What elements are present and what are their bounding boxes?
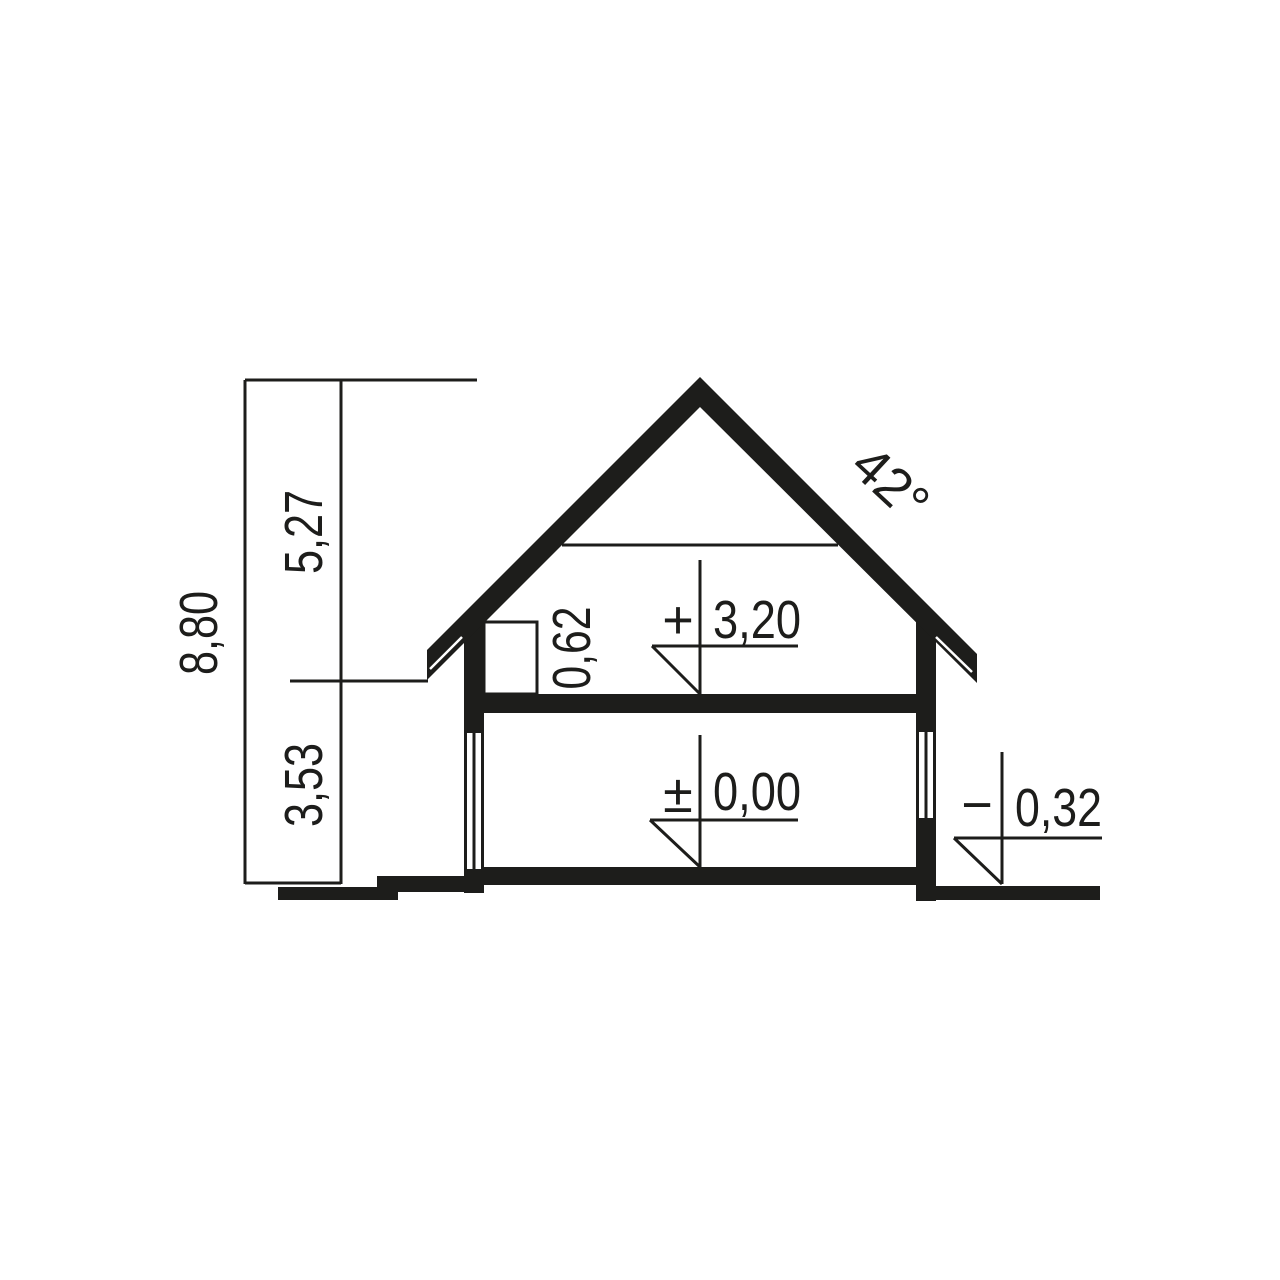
level-sign-exterior-grade: −: [961, 775, 993, 835]
right-window-inner-pane: [933, 732, 936, 818]
left-window-outer-pane: [464, 733, 467, 869]
section-canvas: 8,80 5,27 3,53 0,62 42° + 3,20 ± 0,00 − …: [0, 0, 1280, 1280]
level-marker-ground-flag: [650, 820, 700, 867]
left-wall: [464, 616, 484, 893]
dimension-label-total-height: 8,80: [169, 591, 229, 675]
level-sign-attic-floor: +: [662, 590, 694, 650]
dimension-label-upper-height: 5,27: [274, 490, 334, 574]
level-marker-grade-flag: [954, 838, 1002, 884]
level-value-exterior-grade: 0,32: [1015, 778, 1102, 838]
attic-floor-slab: [484, 694, 916, 713]
left-window-inner-pane: [481, 733, 484, 869]
dimension-label-knee-wall: 0,62: [542, 607, 602, 690]
knee-wall-box: [484, 622, 537, 694]
right-window-middle-pane: [925, 732, 928, 818]
roof-angle-label: 42°: [840, 434, 941, 534]
dimension-label-lower-height: 3,53: [274, 743, 334, 827]
cross-section-drawing: 8,80 5,27 3,53 0,62 42° + 3,20 ± 0,00 − …: [0, 0, 1280, 1280]
exterior-grade-slab: [916, 886, 1100, 900]
left-window-middle-pane: [473, 733, 476, 869]
ground-floor-slab: [484, 867, 916, 885]
level-sign-ground-floor: ±: [663, 764, 693, 824]
roof: [427, 377, 977, 683]
level-value-ground-floor: 0,00: [713, 762, 801, 822]
level-marker-attic-flag: [652, 646, 700, 694]
level-value-attic-floor: 3,20: [713, 590, 801, 650]
entry-step-slab: [377, 876, 484, 892]
right-wall: [916, 616, 936, 901]
right-window-outer-pane: [916, 732, 919, 818]
